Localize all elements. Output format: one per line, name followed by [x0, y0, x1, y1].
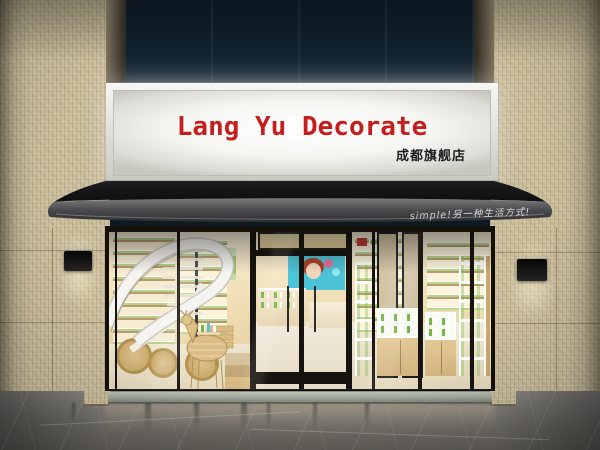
wall-lamp-right [517, 259, 547, 281]
tile-joint [0, 322, 110, 323]
upper-recess-right [472, 0, 494, 92]
lamp-uplight-glow [511, 244, 555, 260]
floor-reflection-bar [72, 403, 75, 430]
lamp-downlight-glow [506, 278, 560, 324]
lamp-downlight-glow [54, 266, 104, 310]
floor-reflection-bar [267, 403, 270, 430]
tile-joint [52, 228, 53, 391]
shop-name-text: Lang Yu Decorate [114, 112, 490, 142]
shop-signboard: Lang Yu Decorate 成都旗舰店 [106, 83, 498, 183]
storefront-glazing [105, 226, 495, 397]
entry-threshold-step [108, 392, 492, 404]
floor-reflection-bar [145, 403, 151, 430]
floor-reflection-bar [313, 403, 317, 430]
signboard-lightbox: Lang Yu Decorate 成都旗舰店 [113, 90, 491, 176]
wall-lamp-left [64, 251, 92, 271]
storefront-scene: Lang Yu Decorate 成都旗舰店 simple!另一种生活方式! [0, 0, 600, 450]
upper-curtain-wall [126, 0, 474, 92]
shop-branch-text: 成都旗舰店 [396, 145, 466, 164]
upper-recess-left [106, 0, 128, 92]
lamp-uplight-glow [58, 236, 100, 252]
floor-reflection-bar [241, 403, 247, 430]
glass-reflection-overlay [109, 232, 491, 390]
marble-floor [0, 391, 600, 450]
floor-reflection-bar [365, 403, 369, 430]
